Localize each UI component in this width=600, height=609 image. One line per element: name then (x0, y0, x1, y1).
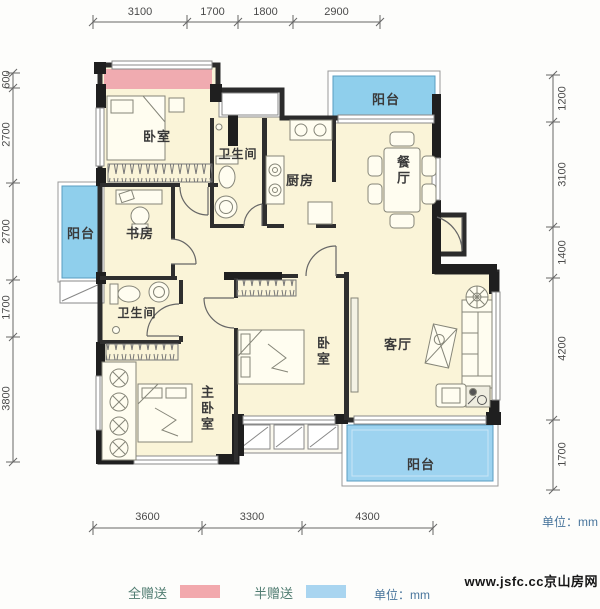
fridge-symbol (308, 202, 332, 224)
dim-left-5: 3800 (1, 369, 14, 429)
balcony-bottom-zone (342, 420, 498, 486)
room-label-bedroom-top: 卧室 (131, 126, 183, 145)
dim-right-4: 4200 (557, 319, 570, 379)
dim-top-2: 1700 (187, 6, 238, 18)
legend-half-gift-label: 半赠送 (254, 583, 293, 602)
room-label-master-bedroom: 主卧室 (197, 385, 216, 433)
dim-left-4: 1700 (1, 278, 14, 338)
dim-top-4: 2900 (293, 6, 380, 18)
full-gift-zone (104, 69, 212, 89)
room-label-living: 客厅 (372, 334, 424, 353)
tv-cabinet-symbol (351, 298, 358, 392)
sink-symbol-left (149, 282, 169, 302)
room-label-bathroom-top: 卫生间 (204, 145, 272, 162)
floorplan-screenshot: 3100 1700 1800 2900 3600 3300 4300 单位：mm… (0, 0, 600, 609)
dim-right-1: 1200 (557, 69, 570, 129)
dim-left-3: 2700 (1, 202, 14, 262)
room-label-balcony-bottom: 阳台 (395, 454, 447, 473)
unit-label-dimensions: 单位：mm (516, 513, 598, 530)
room-label-kitchen: 厨房 (274, 170, 326, 189)
room-label-balcony-top: 阳台 (360, 89, 412, 108)
room-label-dining: 餐厅 (393, 155, 412, 187)
dim-top-3: 1800 (238, 6, 293, 18)
unit-label-legend: 单位：mm (374, 586, 430, 603)
dim-right-5: 1700 (557, 425, 570, 485)
dim-right-3: 1400 (557, 223, 570, 283)
kitchen-sink-symbol (290, 120, 332, 140)
bed-symbol-master (138, 384, 192, 442)
toilet-symbol-left (110, 284, 140, 304)
dim-left-2: 2700 (1, 105, 14, 165)
dim-bottom-2: 3300 (202, 511, 302, 523)
room-label-study: 书房 (114, 223, 166, 242)
sink-symbol-top (215, 196, 237, 218)
dim-left-1: 600 (1, 50, 14, 110)
floor-drain-symbol (113, 327, 120, 334)
room-label-balcony-left: 阳台 (55, 223, 107, 242)
shower-symbol-top (216, 124, 222, 130)
sofa-symbol (462, 300, 492, 388)
plant-symbol (466, 286, 488, 308)
dim-bottom-1: 3600 (93, 511, 202, 523)
bed-symbol-middle (238, 330, 304, 384)
armchair-symbol (436, 384, 466, 407)
side-table-symbol (466, 386, 490, 407)
room-label-bedroom-middle: 卧室 (313, 336, 332, 368)
legend-full-gift-swatch (180, 585, 220, 598)
dim-bottom-3: 4300 (302, 511, 433, 523)
dim-right-2: 3100 (557, 145, 570, 205)
legend-full-gift-label: 全赠送 (128, 583, 167, 602)
dim-top-1: 3100 (93, 6, 187, 18)
master-wardrobe-symbol (102, 362, 136, 460)
watermark-text: www.jsfc.cc京山房网 (438, 571, 598, 590)
closet-symbol (222, 93, 278, 115)
legend-half-gift-swatch (306, 585, 346, 598)
room-label-bathroom-left: 卫生间 (103, 304, 171, 321)
